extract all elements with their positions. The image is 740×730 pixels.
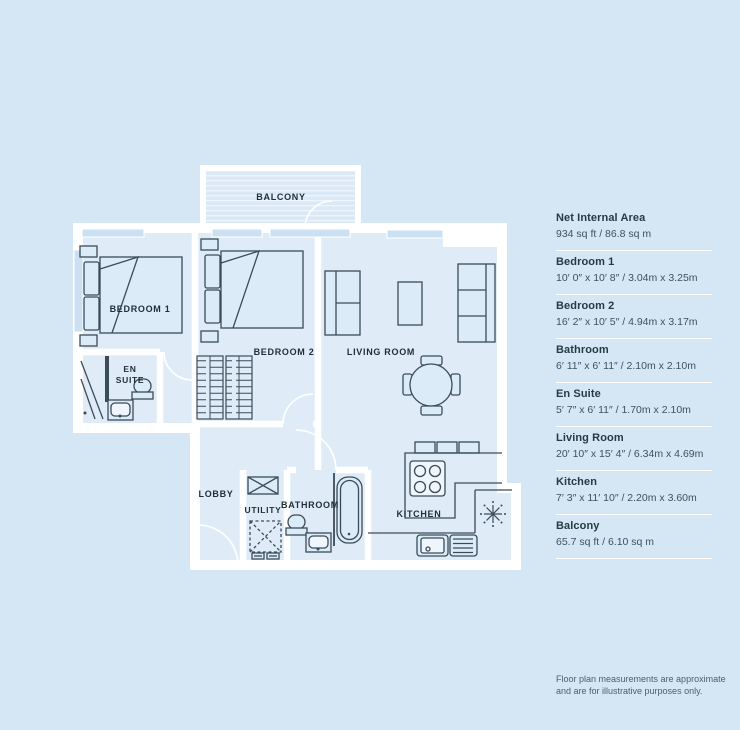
measurement-value: 7′ 3″ x 11′ 10″ / 2.20m x 3.60m [556,492,712,505]
measurement-row: Net Internal Area 934 sq ft / 86.8 sq m [556,207,712,251]
measurement-label: Bedroom 1 [556,256,712,269]
disclaimer-line-1: Floor plan measurements are approximate [556,674,726,684]
bathroom-sink [306,533,331,552]
room-label-lobby: LOBBY [199,489,234,499]
sofa-left [325,271,360,335]
room-label-utility: UTILITY [244,505,281,515]
corner-wall-block [443,224,503,247]
measurement-value: 20′ 10″ x 15′ 4″ / 6.34m x 4.69m [556,448,712,461]
side-unit [398,282,422,325]
measurement-value: 65.7 sq ft / 6.10 sq m [556,536,712,549]
hob [410,461,445,496]
measurement-row: Living Room 20′ 10″ x 15′ 4″ / 6.34m x 4… [556,427,712,471]
room-label-bedroom2: BEDROOM 2 [254,347,315,357]
kitchen-sink [417,535,477,556]
window [270,229,350,237]
measurement-label: Kitchen [556,476,712,489]
measurement-label: Balcony [556,520,712,533]
measurement-value: 10′ 0″ x 10′ 8″ / 3.04m x 3.25m [556,272,712,285]
measurement-value: 6′ 11″ x 6′ 11″ / 2.10m x 2.10m [556,360,712,373]
room-label-bedroom1: BEDROOM 1 [110,304,171,314]
room-label-balcony: BALCONY [256,192,305,202]
room-label-bathroom: BATHROOM [281,500,339,510]
measurement-row: En Suite 5′ 7″ x 6′ 11″ / 1.70m x 2.10m [556,383,712,427]
measurement-label: Bathroom [556,344,712,357]
measurement-label: En Suite [556,388,712,401]
ensuite-sink [108,400,133,420]
disclaimer: Floor plan measurements are approximate … [556,674,734,697]
measurement-value: 16′ 2″ x 10′ 5″ / 4.94m x 3.17m [556,316,712,329]
page: BALCONY BEDROOM 1 BEDROOM 2 LIVING ROOM … [0,0,740,730]
window [387,230,443,238]
room-label-living-room: LIVING ROOM [347,347,415,357]
measurement-label: Living Room [556,432,712,445]
bathroom-toilet [286,515,307,535]
measurement-row: Bedroom 1 10′ 0″ x 10′ 8″ / 3.04m x 3.25… [556,251,712,295]
window [74,250,83,332]
measurement-value: 5′ 7″ x 6′ 11″ / 1.70m x 2.10m [556,404,712,417]
measurements-panel: Net Internal Area 934 sq ft / 86.8 sq m … [556,207,712,559]
measurement-label: Bedroom 2 [556,300,712,313]
window [212,229,262,237]
room-label-kitchen: KITCHEN [397,509,442,519]
measurement-row: Bedroom 2 16′ 2″ x 10′ 5″ / 4.94m x 3.17… [556,295,712,339]
measurement-value: 934 sq ft / 86.8 sq m [556,228,712,241]
room-label-en-suite-2: SUITE [116,375,145,385]
room-label-en-suite-1: EN [123,364,136,374]
window [82,229,144,237]
measurement-row: Balcony 65.7 sq ft / 6.10 sq m [556,515,712,559]
measurement-row: Kitchen 7′ 3″ x 11′ 10″ / 2.20m x 3.60m [556,471,712,515]
measurement-label: Net Internal Area [556,212,712,225]
disclaimer-line-2: and are for illustrative purposes only. [556,686,702,696]
measurement-row: Bathroom 6′ 11″ x 6′ 11″ / 2.10m x 2.10m [556,339,712,383]
utility-cupboard [248,477,278,494]
sofa-right [458,264,495,342]
